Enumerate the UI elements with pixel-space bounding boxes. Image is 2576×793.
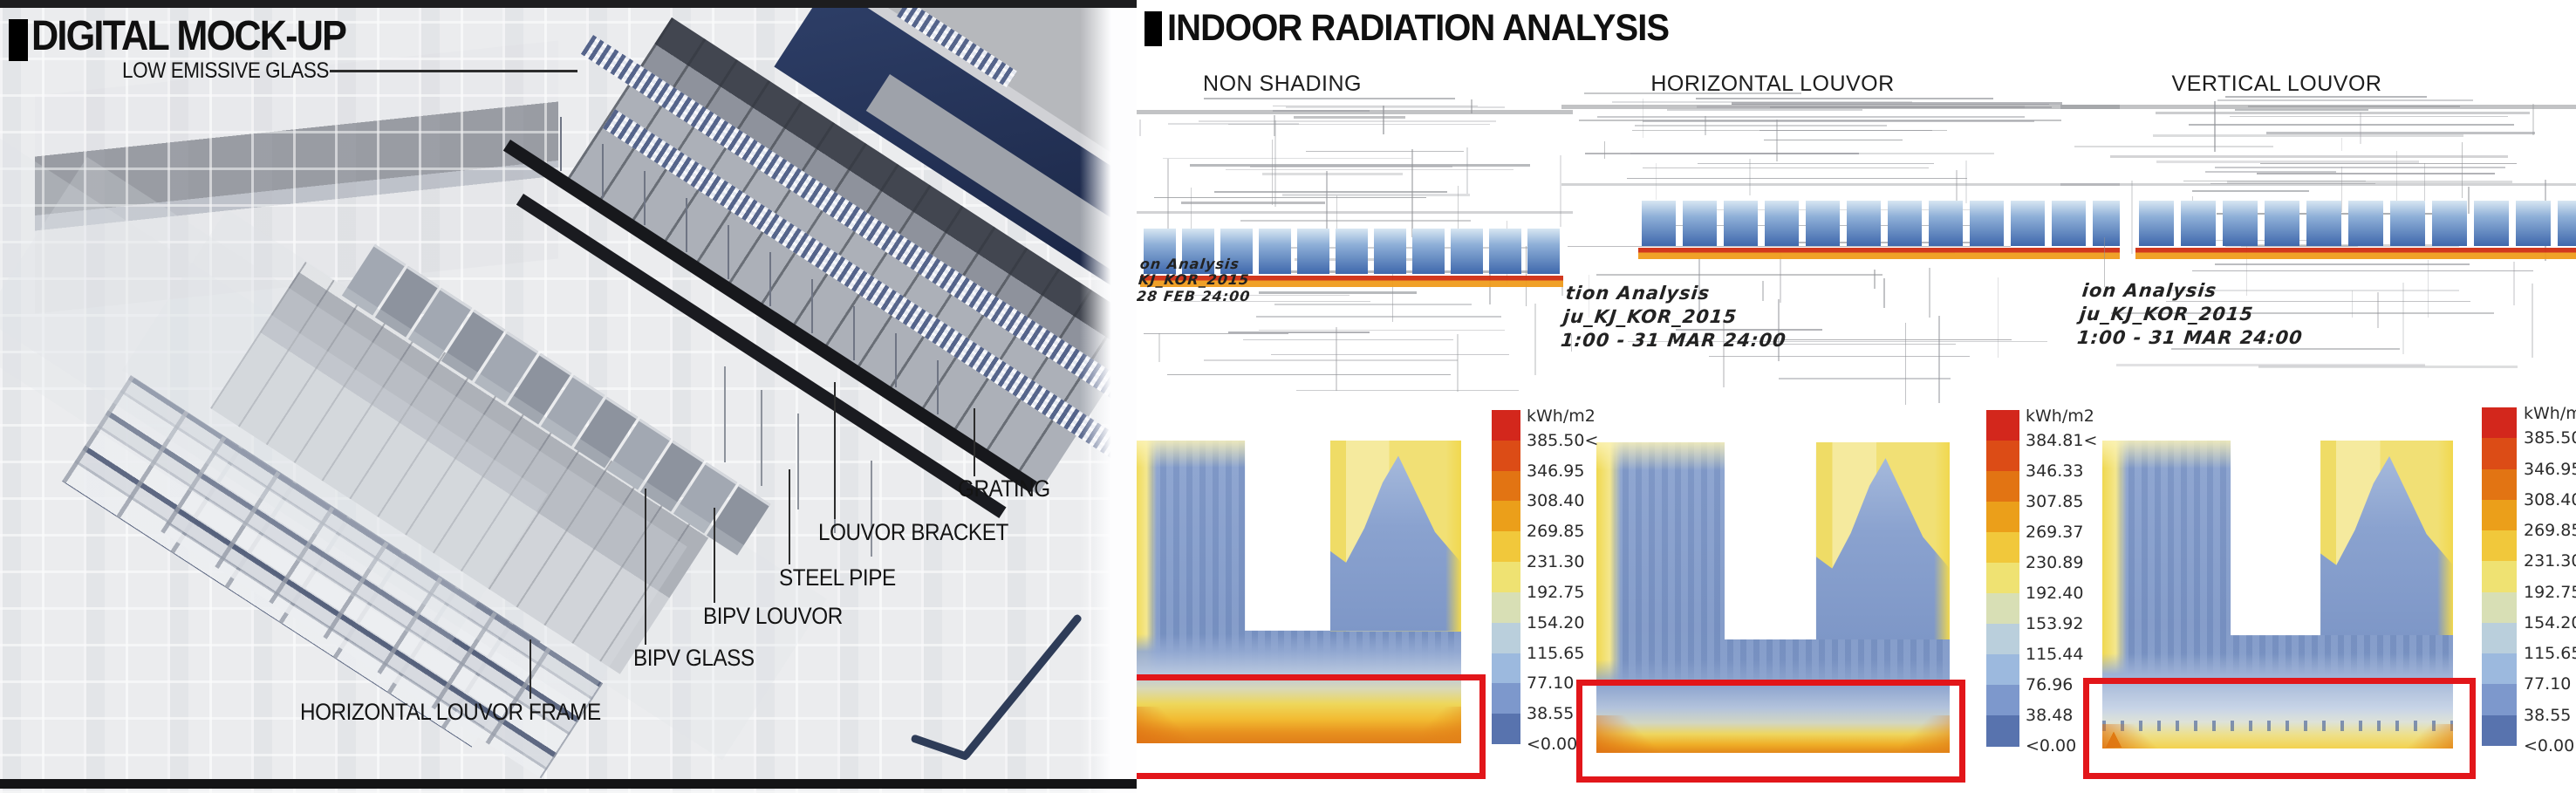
radiation-window-cell <box>2306 201 2341 246</box>
legend-color-segment <box>1492 623 1520 653</box>
wireframe-line <box>1274 304 1472 305</box>
highlight-box-non-shading <box>1124 674 1486 779</box>
legend-value-label: 269.85 <box>1527 522 1584 541</box>
legend-value-label: 346.95 <box>1527 461 1584 481</box>
wireframe-line <box>1168 123 1300 125</box>
heatmap-right-arm <box>1330 441 1461 632</box>
callout-horizontal-louvor-frame-leader <box>530 639 531 699</box>
legend-color-segment <box>1986 624 2019 655</box>
wireframe-line <box>2352 291 2354 318</box>
wireframe-line <box>1627 178 1967 180</box>
wireframe-line <box>2341 138 2343 151</box>
wireframe-line <box>2215 263 2470 265</box>
radiation-window-cell <box>2223 201 2258 246</box>
wireframe-line <box>1139 120 1141 136</box>
legend-unit-label: kWh/m2 <box>2524 404 2576 423</box>
wireframe-line <box>1632 130 1947 132</box>
panel-bottom-rule <box>0 779 1137 789</box>
wireframe-line <box>1776 120 1778 161</box>
louvor-bracket-pin <box>644 171 646 225</box>
wireframe-line <box>1643 120 2034 122</box>
radiation-window-cell <box>1489 229 1521 274</box>
louvor-bracket-pin <box>769 252 771 306</box>
louvor-bracket-pin <box>686 198 687 252</box>
legend-value-label: 308.40 <box>1527 491 1584 510</box>
radiation-window-cell <box>1336 229 1368 274</box>
wireframe-line <box>1282 194 1470 196</box>
legend-value-label: 115.44 <box>2026 645 2083 664</box>
legend-color-segment <box>1492 562 1520 592</box>
wireframe-line <box>2235 109 2368 111</box>
wireframe-line <box>1656 163 1657 200</box>
steel-pipe-pin <box>761 390 762 486</box>
radiation-window-cell <box>2139 201 2174 246</box>
title-block-icon <box>9 19 28 61</box>
legend-value-label: <0.00 <box>2026 736 2076 755</box>
legend-color-segment <box>2482 561 2517 592</box>
analysis-annotation-non-shading: on Analysis KJ_KOR_2015 28 FEB 24:00 <box>1136 256 1254 304</box>
radiation-window-cell <box>2474 201 2509 246</box>
title-block-icon <box>1145 11 1162 46</box>
wireframe-line <box>2402 283 2404 355</box>
legend-color-segment <box>1492 592 1520 623</box>
radiation-window-cell <box>1970 201 2004 246</box>
wireframe-line <box>1458 186 1459 233</box>
legend-value-label: 77.10 <box>1527 673 1574 693</box>
wireframe-line <box>1597 116 2025 118</box>
legend-value-label: 38.55 <box>2524 706 2571 725</box>
wireframe-line <box>2227 181 2513 183</box>
wireframe-line <box>2468 187 2470 214</box>
legend-color-segment <box>1492 653 1520 684</box>
wireframe-line <box>1336 327 1337 391</box>
radiation-window-cell <box>1451 229 1483 274</box>
wireframe-line <box>1190 164 1530 167</box>
wireframe-line <box>2131 181 2133 254</box>
wireframe-view-horizontal-louvor <box>1561 92 2120 405</box>
wireframe-line <box>1158 333 1160 361</box>
callout-low-emissive-glass-label: LOW EMISSIVE GLASS <box>122 60 329 82</box>
wireframe-line <box>1667 109 1862 111</box>
steel-pipe-pin <box>797 414 799 509</box>
wireframe-line <box>1273 110 1370 112</box>
legend-color-segment <box>2482 623 2517 654</box>
legend-color-segment <box>2482 407 2517 439</box>
wireframe-line <box>1256 316 1502 318</box>
radiation-window-cell <box>1412 229 1445 274</box>
wireframe-line <box>1779 378 1951 379</box>
legend-value-label: 115.65 <box>2524 644 2576 663</box>
callout-louvor-bracket-label: LOUVOR BRACKET <box>818 521 1008 544</box>
radiation-window-cell <box>2011 201 2045 246</box>
wireframe-line <box>1749 159 1751 196</box>
wireframe-line <box>1585 153 1859 154</box>
wireframe-line <box>1534 304 1536 375</box>
digital-mockup-panel: DIGITAL MOCK-UP LOW EMISSIVE GLASS GRATI… <box>0 0 1137 793</box>
figure-root: DIGITAL MOCK-UP LOW EMISSIVE GLASS GRATI… <box>0 0 2576 793</box>
wireframe-beam <box>1137 211 1573 214</box>
callout-horizontal-louvor-frame-label: HORIZONTAL LOUVOR FRAME <box>300 701 601 724</box>
louvor-bracket-pin <box>811 279 813 333</box>
legend-value-label: 231.30 <box>1527 552 1584 571</box>
legend-color-segment <box>1492 441 1520 471</box>
legend-value-label: 77.10 <box>2524 674 2571 694</box>
heatmap-right-window-edge <box>2437 441 2453 635</box>
legend-value-label: 385.50< <box>1527 431 1598 450</box>
heatmap-right-arm <box>2320 441 2453 635</box>
wireframe-line <box>1697 106 2025 108</box>
legend-value-label: 153.92 <box>2026 614 2083 633</box>
legend-value-label: 230.89 <box>2026 553 2083 572</box>
legend-color-segment <box>2482 715 2517 747</box>
heatmap-right-window-edge <box>1445 441 1461 632</box>
wireframe-line <box>1635 125 1886 126</box>
wireframe-line <box>2192 270 2533 272</box>
panel-top-rule <box>0 0 1137 8</box>
legend-color-segment <box>1986 502 2019 533</box>
radiation-hot-strip <box>2135 248 2576 259</box>
highlight-box-horizontal-louvor <box>1576 680 1965 783</box>
legend-color-segment <box>2482 469 2517 501</box>
legend-value-label: 192.40 <box>2026 584 2083 603</box>
louvor-bracket-pin <box>853 306 855 360</box>
callout-bipv-louvor-label: BIPV LOUVOR <box>703 605 843 628</box>
radiation-window-cell <box>1806 201 1840 246</box>
legend-value-label: 269.37 <box>2026 523 2083 542</box>
legend-color-segment <box>1986 715 2019 747</box>
wireframe-line <box>2377 292 2379 328</box>
radiation-window-cell <box>1527 229 1560 274</box>
radiation-window-cell <box>1297 229 1329 274</box>
radiation-window-cell <box>1929 201 1963 246</box>
right-panel-title: INDOOR RADIATION ANALYSIS <box>1167 7 1669 50</box>
legend-color-segment <box>1492 410 1520 441</box>
legend-color-segment <box>1986 593 2019 625</box>
wireframe-line <box>1643 167 1929 169</box>
legend-color-segment <box>2482 653 2517 685</box>
legend-value-label: 192.75 <box>2524 583 2576 602</box>
wireframe-line <box>1938 316 1940 403</box>
analysis-annotation-horizontal-louvor: tion Analysis ju_KJ_KOR_2015 1:00 - 31 M… <box>1560 282 1793 352</box>
legend-value-label: 307.85 <box>2026 492 2083 511</box>
radiation-window-cell <box>2181 201 2216 246</box>
legend-color-segment <box>2482 684 2517 715</box>
wireframe-line <box>2189 124 2514 126</box>
legend-unit-label: kWh/m2 <box>2026 407 2094 426</box>
wireframe-line <box>2203 240 2322 242</box>
wireframe-line <box>2210 183 2374 185</box>
legend-value-label: 76.96 <box>2026 675 2073 694</box>
legend-color-segment <box>2482 592 2517 624</box>
legend-value-label: 384.81< <box>2026 431 2097 450</box>
wireframe-line <box>1874 270 1876 288</box>
callout-grating-label: GRATING <box>958 477 1050 501</box>
legend-value-label: <0.00 <box>2524 736 2574 755</box>
heatmap-right-arm <box>1816 442 1950 639</box>
legend-value-label: 231.30 <box>2524 551 2576 571</box>
heatmap-right-window-edge <box>1934 442 1950 639</box>
steel-pipe-pin <box>724 366 726 462</box>
heatmap-blue-gradient <box>1816 442 1950 639</box>
wireframe-line <box>1167 374 1451 376</box>
callout-louvor-bracket-leader <box>834 382 836 519</box>
wireframe-line <box>1883 278 1885 308</box>
legend-color-segment <box>1986 532 2019 564</box>
legend-value-label: 346.95 <box>2524 460 2576 479</box>
heatmap-blue-gradient <box>1330 441 1461 632</box>
legend-value-label: 192.75 <box>1527 583 1584 602</box>
louvor-bracket-pin <box>937 360 939 414</box>
legend-color-segment <box>1492 531 1520 562</box>
wireframe-line <box>1466 147 1468 193</box>
legend-value-label: 346.33 <box>2026 461 2083 481</box>
wireframe-line <box>1204 98 1455 99</box>
wireframe-line <box>1457 334 1459 392</box>
legend-value-label: 154.20 <box>1527 613 1584 632</box>
radiation-window-cell <box>2348 201 2383 246</box>
wireframe-line <box>1762 344 1956 345</box>
left-panel-title: DIGITAL MOCK-UP <box>31 14 345 60</box>
legend-vertical-louvor: kWh/m2385.50<346.95308.40269.85231.30192… <box>2482 407 2576 763</box>
legend-value-label: 38.48 <box>2026 706 2073 725</box>
wireframe-line <box>2205 171 2336 173</box>
legend-color-segment <box>1492 683 1520 714</box>
wireframe-line <box>2110 155 2508 158</box>
wireframe-line <box>1698 163 1933 165</box>
wireframe-line <box>2513 262 2515 305</box>
radiation-window-cell <box>2516 201 2551 246</box>
wireframe-line <box>2532 284 2533 358</box>
wireframe-line <box>1243 339 1453 341</box>
radiation-window-cell <box>2390 201 2425 246</box>
louvor-bracket-pin <box>560 117 562 171</box>
wireframe-line <box>1596 274 1882 276</box>
wireframe-line <box>2192 190 2309 192</box>
highlight-box-vertical-louvor <box>2083 678 2476 779</box>
wireframe-line <box>1163 158 1411 160</box>
wireframe-line <box>2156 161 2418 163</box>
callout-bipv-glass-label: BIPV GLASS <box>633 646 755 670</box>
legend-value-label: 115.65 <box>1527 644 1584 663</box>
wireframe-line <box>1905 323 1907 405</box>
radiation-window-cell <box>1888 201 1922 246</box>
legend-color-segment <box>1986 471 2019 502</box>
radiation-window-cell <box>1724 201 1758 246</box>
legend-value-label: 154.20 <box>2524 613 2576 632</box>
wireframe-beam <box>1561 183 2120 186</box>
legend-color-segment <box>2482 500 2517 531</box>
wireframe-line <box>1228 332 1370 333</box>
wireframe-line <box>1274 115 1275 136</box>
radiation-window-cell <box>2265 201 2299 246</box>
legend-value-label: 385.50< <box>2524 428 2576 448</box>
wireframe-line <box>2153 134 2463 137</box>
wireframe-line <box>1411 149 1413 237</box>
wireframe-line <box>1643 99 1644 138</box>
wireframe-line <box>2225 96 2427 98</box>
legend-color-segment <box>2482 530 2517 562</box>
wireframe-line <box>2260 163 2517 165</box>
heatmap-blue-gradient <box>2320 441 2453 635</box>
wireframe-line <box>1696 98 1992 99</box>
legend-color-segment <box>1986 685 2019 716</box>
wireframe-line <box>1199 120 1496 122</box>
wireframe-view-non-shading <box>1137 98 1573 405</box>
callout-steel-pipe-label: STEEL PIPE <box>779 566 896 590</box>
wireframe-line <box>1604 141 1606 159</box>
callout-bipv-louvor-leader <box>714 508 715 603</box>
wireframe-line <box>2462 142 2463 198</box>
wireframe-line <box>1181 202 1325 204</box>
wireframe-line <box>2248 106 2460 107</box>
wireframe-line <box>1296 390 1520 392</box>
wireframe-line <box>1709 356 1970 358</box>
wireframe-line <box>1272 140 1274 205</box>
radiation-window-cell <box>2432 201 2467 246</box>
wireframe-line <box>2156 112 2531 114</box>
wireframe-line <box>1294 116 1405 119</box>
wireframe-line <box>1262 173 1403 175</box>
legend-color-segment <box>1986 563 2019 594</box>
louvor-bracket-pin <box>728 225 729 279</box>
wireframe-line <box>1383 106 1384 133</box>
legend-value-label: 308.40 <box>2524 490 2576 509</box>
wireframe-line <box>1306 151 1464 153</box>
legend-value-label: 38.55 <box>1527 704 1574 723</box>
legend-color-segment <box>1986 410 2019 441</box>
wireframe-line <box>1764 140 1903 141</box>
callout-steel-pipe-leader <box>789 469 790 564</box>
wireframe-line <box>1326 171 1328 234</box>
wireframe-line <box>1271 354 1510 356</box>
wireframe-line <box>1336 195 1338 229</box>
wireframe-line <box>1965 161 1967 203</box>
wireframe-line <box>1705 116 1706 134</box>
legend-color-segment <box>1986 441 2019 472</box>
legend-value-label: 269.85 <box>2524 521 2576 540</box>
analysis-annotation-vertical-louvor: ion Analysis ju_KJ_KOR_2015 1:00 - 31 MA… <box>2076 279 2309 350</box>
legend-unit-label: kWh/m2 <box>1527 407 1595 426</box>
column-header-non-shading: NON SHADING <box>1143 72 1422 97</box>
radiation-window-cell <box>1642 201 1676 246</box>
wireframe-line <box>1144 333 1288 335</box>
legend-color-segment <box>1492 714 1520 744</box>
wireframe-view-vertical-louvor <box>2060 92 2576 405</box>
radiation-window-cell <box>1259 229 1291 274</box>
radiation-hot-strip <box>1638 248 2120 259</box>
wireframe-line <box>1154 197 1426 199</box>
wireframe-line <box>1471 99 1472 113</box>
legend-color-segment <box>1986 654 2019 686</box>
panel-right-fade <box>1080 0 1137 793</box>
legend-value-label: <0.00 <box>1527 735 1577 754</box>
callout-grating-leader <box>974 408 975 476</box>
wireframe-line <box>1226 169 1514 171</box>
callout-low-emissive-glass-leader <box>330 70 577 72</box>
louvor-bracket-pin <box>602 144 604 198</box>
wireframe-line <box>2428 260 2429 318</box>
wireframe-line <box>2360 113 2361 144</box>
callout-bipv-glass-leader <box>645 489 646 645</box>
wireframe-line <box>1240 220 1471 222</box>
wireframe-line <box>1204 359 1459 361</box>
wireframe-line <box>2116 364 2425 366</box>
radiation-window-cell <box>1847 201 1881 246</box>
louvor-bracket-pin <box>895 333 897 387</box>
radiation-window-cell <box>1374 229 1406 274</box>
wireframe-line <box>1998 277 1999 358</box>
legend-color-segment <box>1492 471 1520 502</box>
wireframe-line <box>2217 99 2474 101</box>
wireframe-line <box>1929 268 1930 318</box>
wireframe-line <box>2257 173 2495 174</box>
wireframe-line <box>1259 330 1505 332</box>
radiation-window-cell <box>1683 201 1717 246</box>
radiation-window-cell <box>2558 201 2576 246</box>
wireframe-line <box>1584 92 1800 94</box>
legend-color-segment <box>1492 501 1520 531</box>
legend-color-segment <box>2482 438 2517 469</box>
wireframe-line <box>2074 146 2273 147</box>
radiation-window-cell <box>1765 201 1799 246</box>
wireframe-line <box>2214 101 2216 151</box>
wireframe-line <box>2532 104 2534 136</box>
wireframe-line <box>2230 116 2508 118</box>
